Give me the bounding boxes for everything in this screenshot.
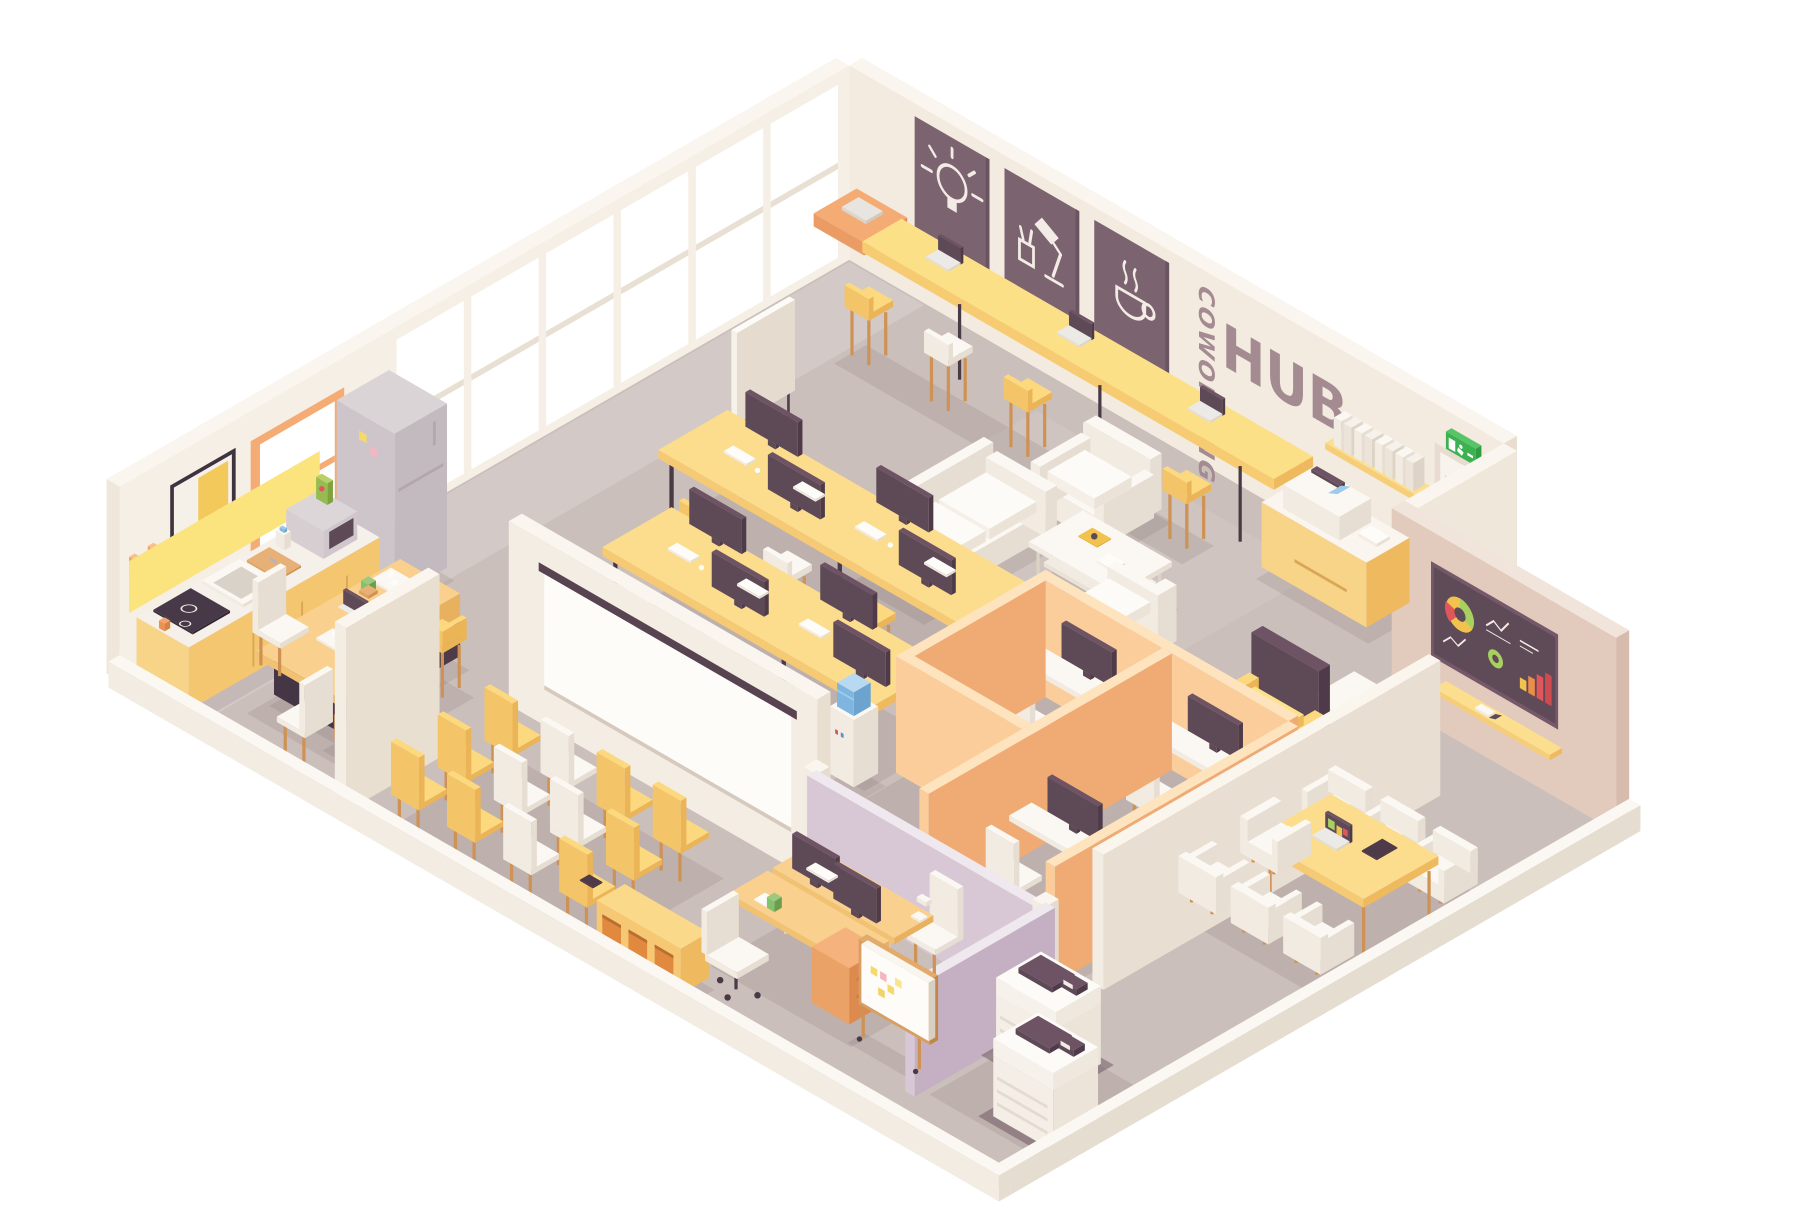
coworking-hub-illustration: COWORKINGHUB [0,0,1820,1213]
isometric-scene: COWORKINGHUB [0,0,1820,1213]
coworking-vertical-text: COWORKING [1194,279,1219,490]
